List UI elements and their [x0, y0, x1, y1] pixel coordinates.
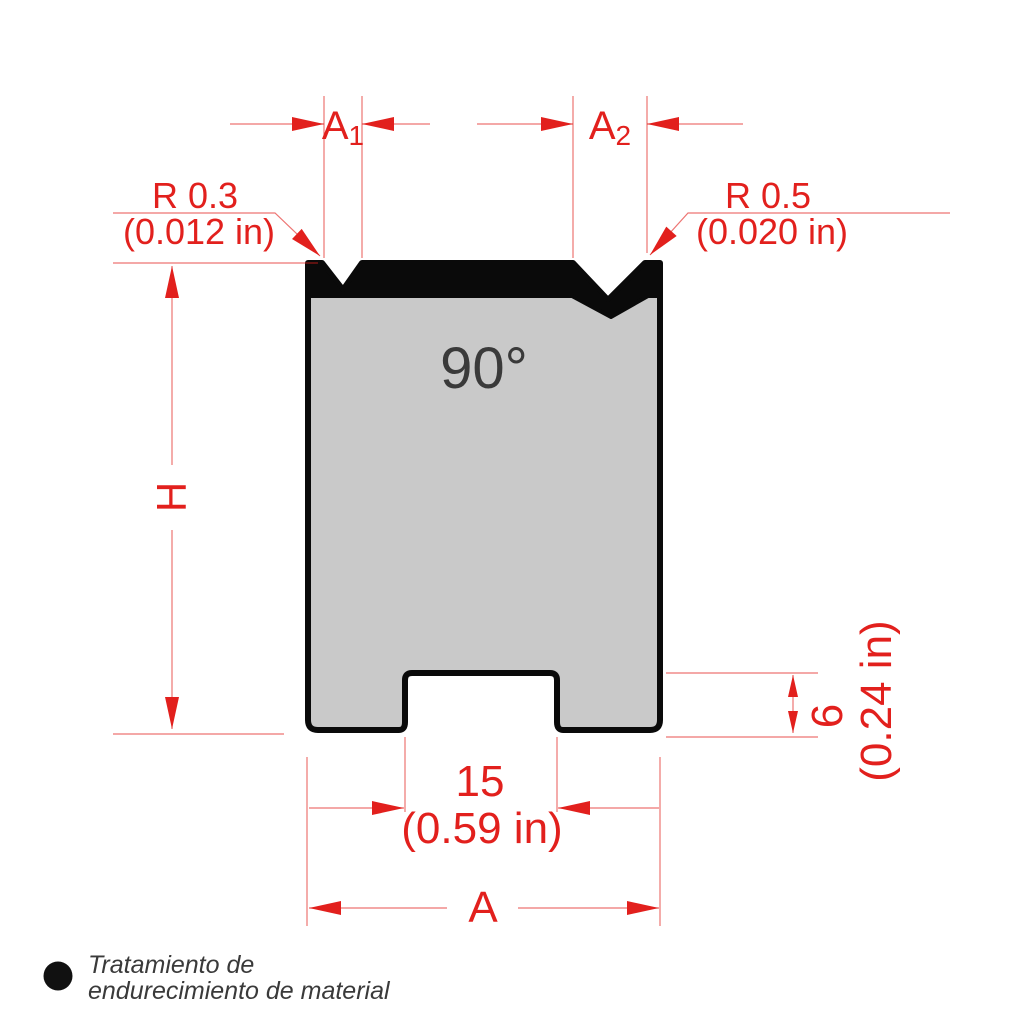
radius-left-inches: (0.012 in) — [123, 211, 275, 252]
die-body — [308, 263, 660, 730]
hardening-dot-icon — [44, 962, 73, 991]
dim-slot-width: 15 (0.59 in) — [309, 757, 659, 853]
die-technical-drawing: 90° A1 A2 R 0.3 (0.012 — [0, 0, 1024, 1024]
dim-slot-depth: 6 (0.24 in) — [788, 620, 901, 781]
legend-line2: endurecimiento de material — [88, 977, 391, 1005]
dim-height-label: H — [148, 482, 195, 512]
slot-width-value: 15 — [456, 757, 505, 806]
dim-a2: A2 — [477, 104, 743, 151]
radius-right-value: R 0.5 — [725, 175, 811, 216]
v-angle-label: 90° — [440, 336, 528, 401]
dim-a1-label: A1 — [322, 104, 364, 151]
drawing-canvas: 90° A1 A2 R 0.3 (0.012 — [0, 0, 1024, 1024]
dim-radius-right: R 0.5 (0.020 in) — [650, 175, 950, 255]
dim-width-label: A — [468, 883, 498, 932]
die-cross-section: 90° — [308, 263, 660, 730]
dim-height: H — [148, 266, 195, 729]
radius-right-inches: (0.020 in) — [696, 211, 848, 252]
dim-width: A — [309, 883, 659, 932]
slot-depth-value: 6 — [803, 704, 852, 728]
radius-left-value: R 0.3 — [152, 175, 238, 216]
dim-a2-label: A2 — [589, 104, 631, 151]
legend-line1: Tratamiento de — [88, 951, 254, 979]
legend: Tratamiento de endurecimiento de materia… — [44, 951, 391, 1005]
slot-width-inches: (0.59 in) — [401, 804, 562, 853]
dim-a1: A1 — [230, 104, 430, 151]
dim-radius-left: R 0.3 (0.012 in) — [113, 175, 320, 256]
slot-depth-inches: (0.24 in) — [852, 620, 901, 781]
